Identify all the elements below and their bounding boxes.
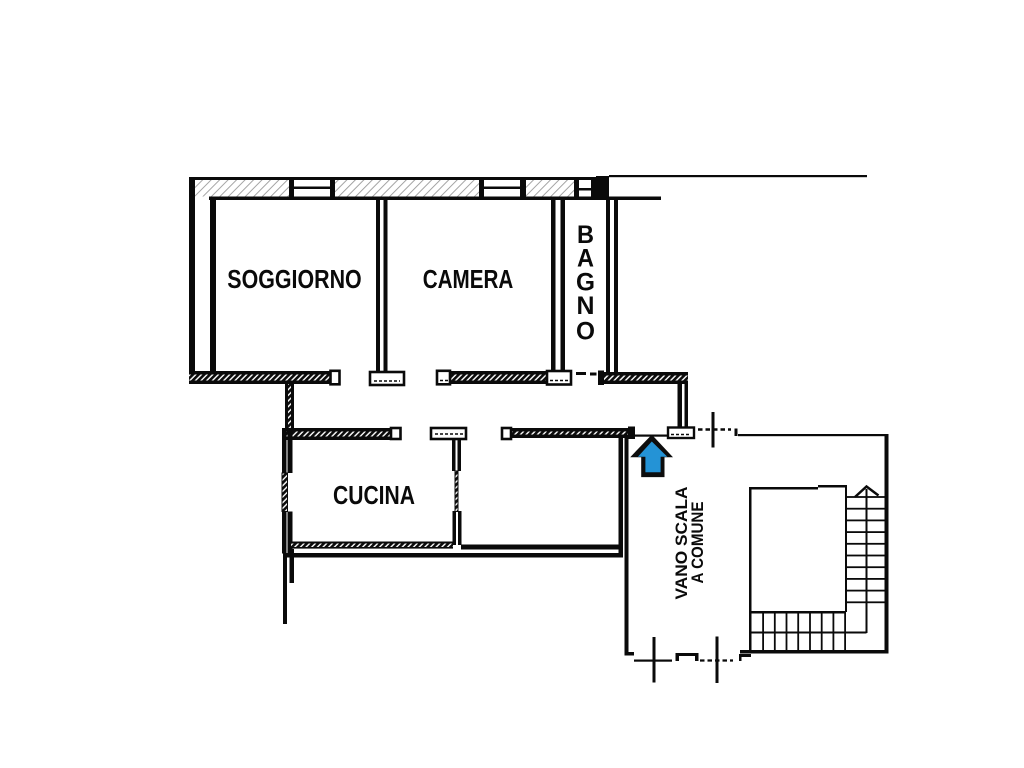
svg-text:A COMUNE: A COMUNE xyxy=(688,502,707,584)
svg-text:O: O xyxy=(576,318,595,346)
svg-text:CUCINA: CUCINA xyxy=(333,482,415,510)
svg-text:N: N xyxy=(577,292,595,320)
svg-text:CAMERA: CAMERA xyxy=(423,266,514,294)
svg-text:SOGGIORNO: SOGGIORNO xyxy=(227,266,361,294)
